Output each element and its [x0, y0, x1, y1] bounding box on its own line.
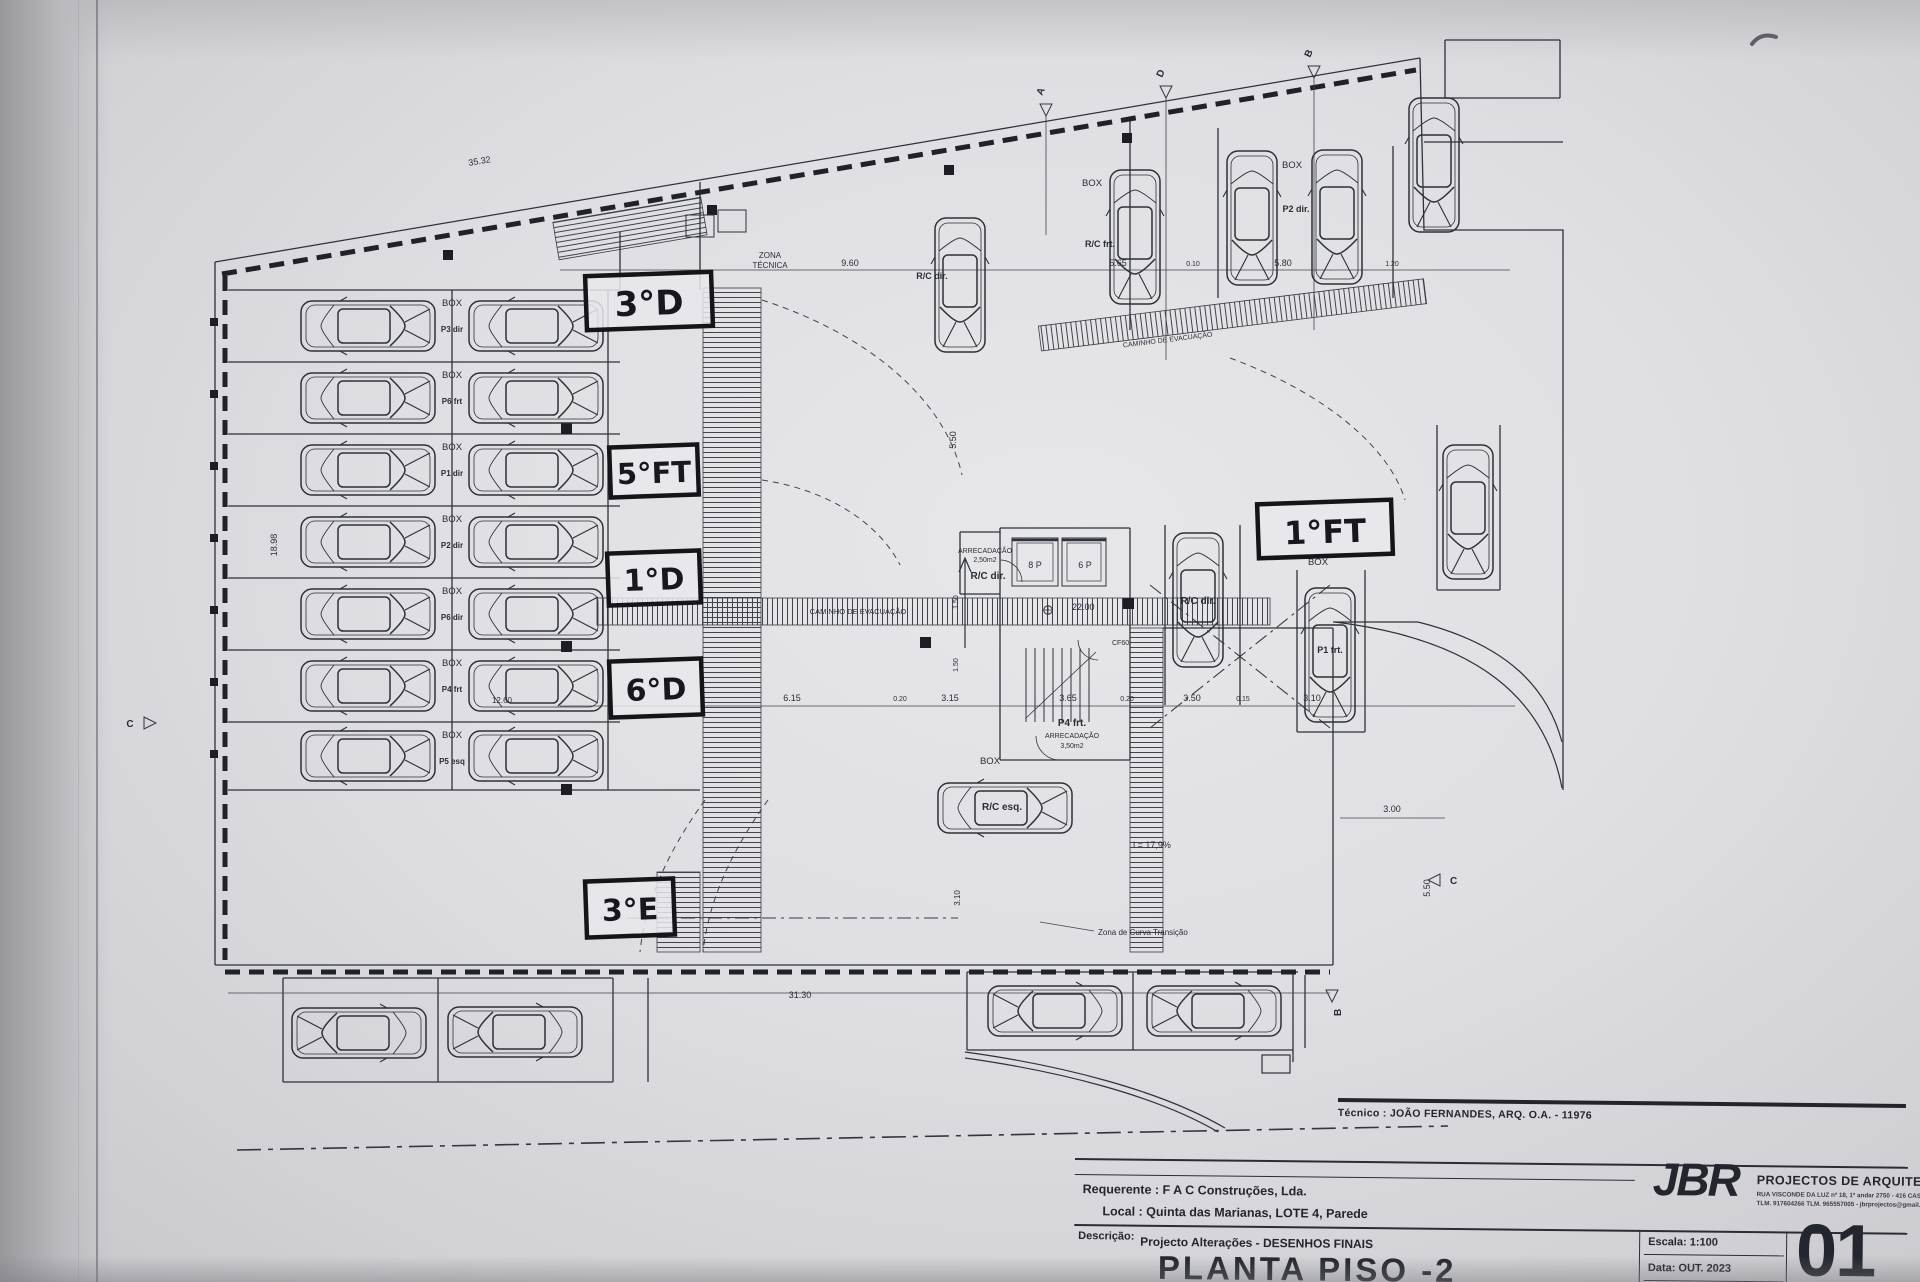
box-label: BOX	[980, 756, 1001, 767]
elevator-label: 8 P	[1028, 560, 1042, 570]
dim-label: 35.32	[468, 154, 492, 168]
section-letter: C	[126, 719, 133, 730]
car	[469, 369, 603, 427]
car	[469, 585, 603, 643]
box-label: BOX	[442, 730, 463, 741]
zona-tecnica-label: ZONA	[759, 251, 782, 260]
car	[1147, 982, 1281, 1040]
section-letter: C	[1450, 876, 1457, 887]
stairs	[1026, 648, 1089, 722]
unit-label: R/C esq.	[982, 802, 1022, 813]
door-code: CF60	[1112, 640, 1129, 647]
photo-of-drawing: BOX P3 dir BOX P6 frt BOX P1 dir BOX P2 …	[0, 0, 1920, 1282]
storage-area: 2,50m2	[973, 557, 996, 564]
car	[301, 657, 435, 715]
punch-hole-mark	[1752, 36, 1776, 44]
handwritten-text: 1°FT	[1283, 512, 1366, 553]
car	[301, 441, 435, 499]
elevator-label: 6 P	[1078, 560, 1092, 570]
dim-label: 5.50	[948, 431, 958, 449]
car	[1106, 170, 1164, 304]
handwritten-text: 6°D	[625, 672, 687, 709]
box-label: BOX	[1082, 178, 1103, 189]
unit-label: R/C dir.	[916, 271, 948, 281]
dim-label: 18.98	[269, 534, 279, 557]
section-flag	[1326, 990, 1338, 1002]
box-label: BOX	[1282, 160, 1303, 171]
level-value: 22.00	[1072, 602, 1095, 612]
handwritten-text: 1°D	[623, 562, 685, 599]
firm-address-1: RUA VISCONDE DA LUZ nº 18, 1º andar 2750…	[1757, 1191, 1920, 1200]
hatch-band-top	[1038, 279, 1426, 351]
dim-label: 6.15	[783, 693, 801, 703]
dim-label: 3.10	[953, 890, 962, 906]
unit-label: P1 frt.	[1317, 645, 1343, 655]
firm-logo: JBR	[1653, 1152, 1740, 1207]
box-label: BOX	[442, 442, 463, 453]
dim-label: 1.50	[953, 658, 960, 672]
unit-label: R/C dir.	[970, 571, 1005, 582]
car	[448, 1003, 582, 1061]
box-label: BOX	[442, 658, 463, 669]
car	[1439, 445, 1497, 579]
parking-code: P2 dir	[441, 541, 463, 550]
handwritten-text: 3°D	[614, 283, 684, 325]
car	[469, 727, 603, 785]
handwritten-apartment-label: 1°D	[607, 550, 701, 605]
dim-label: 1.50	[953, 595, 960, 609]
handwritten-apartment-label: 1°FT	[1257, 500, 1393, 559]
car	[301, 727, 435, 785]
section-letter: A	[1035, 86, 1048, 97]
descricao-label: Descrição:	[1078, 1230, 1134, 1243]
unit-label: P2 dir.	[1282, 204, 1309, 214]
dim-label: 3.50	[1183, 693, 1201, 703]
section-flag	[1040, 104, 1052, 116]
tecnico-box: Técnico : JOÃO FERNANDES, ARQ. O.A. - 11…	[1338, 1098, 1906, 1139]
section-letter: D	[1155, 68, 1168, 79]
dim-label: 31.30	[789, 990, 812, 1000]
dim-label: 3.00	[1383, 804, 1401, 814]
storage-area: 3,50m2	[1060, 743, 1083, 750]
handwritten-apartment-label: 3°D	[585, 272, 713, 330]
photo-shadow-left	[0, 0, 110, 1282]
leader-line	[1040, 922, 1094, 931]
storage-label: ARRECADAÇÃO	[1045, 731, 1100, 740]
handwritten-apartment-label: 6°D	[609, 658, 703, 717]
unit-label: P4 frt.	[1058, 718, 1087, 729]
box-label: BOX	[442, 298, 463, 309]
wall-lines	[215, 40, 1563, 1082]
section-letter: B	[1303, 48, 1316, 59]
divider	[1075, 1174, 1635, 1181]
ramp-slope-label: i = 17,9%	[1133, 840, 1171, 850]
firm-name: PROJECTOS DE ARQUITECTURA	[1757, 1173, 1920, 1189]
parking-code: P5 esq	[439, 757, 465, 766]
box-label: BOX	[442, 586, 463, 597]
handwritten-apartment-label: 3°E	[585, 878, 675, 937]
unit-label: R/C dir.	[1180, 596, 1215, 607]
car	[1223, 151, 1281, 285]
unit-label: R/C frt.	[1085, 239, 1115, 249]
scale-field: Escala: 1:100	[1648, 1236, 1718, 1249]
car	[469, 513, 603, 571]
dim-label: 0.20	[893, 696, 907, 703]
tecnico-text: Técnico : JOÃO FERNANDES, ARQ. O.A. - 11…	[1338, 1107, 1592, 1122]
section-letter: B	[1333, 1009, 1344, 1016]
dimension-labels: 35.32 9.60 5.65 0.10 5.80 1.20 6.15 0.20…	[269, 154, 1432, 1000]
section-flag	[144, 717, 156, 729]
car	[292, 1004, 426, 1062]
dim-label: 0.10	[1186, 261, 1200, 268]
car	[1405, 98, 1463, 232]
evacuation-path-label: CAMINHO DE EVACUAÇÃO	[810, 607, 907, 616]
zona-tecnica-label: TÉCNICA	[752, 261, 788, 270]
box-label: BOX	[442, 370, 463, 381]
handwritten-apartment-label: 5°FT	[609, 444, 699, 497]
plan-labels: ZONA TÉCNICA R/C dir. BOX R/C frt. BOX P…	[752, 160, 1342, 937]
handwritten-text: 3°E	[601, 892, 659, 929]
property-line	[237, 1126, 1448, 1150]
parking-code: P3 dir	[441, 325, 463, 334]
storage-label: ARRECADAÇÃO	[958, 546, 1013, 555]
car	[301, 369, 435, 427]
car	[301, 585, 435, 643]
dim-label: 5.50	[1422, 879, 1432, 897]
dim-label: 12.60	[492, 696, 513, 705]
dim-label: 1.20	[1385, 261, 1399, 268]
car	[469, 297, 603, 355]
parking-code: P4 frt	[442, 685, 463, 694]
car	[469, 441, 603, 499]
dim-label: 5.80	[1274, 258, 1292, 268]
dim-label: 0.15	[1236, 696, 1250, 703]
parking-code: P1 dir	[441, 469, 463, 478]
divider	[1074, 1224, 1907, 1235]
section-flag	[1160, 86, 1172, 98]
box-label: BOX	[442, 514, 463, 525]
curve-zone-label: Zona de Curva Transição	[1098, 928, 1188, 937]
handwritten-text: 5°FT	[616, 455, 692, 492]
hatch-band-vertical-right	[1130, 628, 1163, 952]
parking-code: P6 frt	[442, 397, 463, 406]
dim-label: 0.20	[1120, 696, 1134, 703]
dim-label: 3.15	[941, 693, 959, 703]
dim-label: 3.10	[1303, 693, 1321, 703]
door-swing	[1078, 640, 1098, 660]
dim-label: 5.65	[1109, 258, 1127, 268]
car	[1308, 150, 1366, 284]
parking-sign-box	[1262, 1055, 1290, 1073]
car	[931, 218, 989, 352]
dim-label: 9.60	[841, 258, 859, 268]
floor-plan-drawing: BOX P3 dir BOX P6 frt BOX P1 dir BOX P2 …	[0, 0, 1920, 1282]
car	[301, 297, 435, 355]
local-field: Local : Quinta das Marianas, LOTE 4, Par…	[1102, 1204, 1367, 1221]
car	[301, 513, 435, 571]
cars	[292, 98, 1497, 1062]
requerente-field: Requerente : F A C Construções, Lda.	[1083, 1182, 1307, 1198]
photo-shadow-bottom	[0, 1256, 1920, 1282]
car	[988, 982, 1122, 1040]
dim-label: 3.65	[1059, 693, 1077, 703]
parking-code: P6 dir	[441, 613, 463, 622]
